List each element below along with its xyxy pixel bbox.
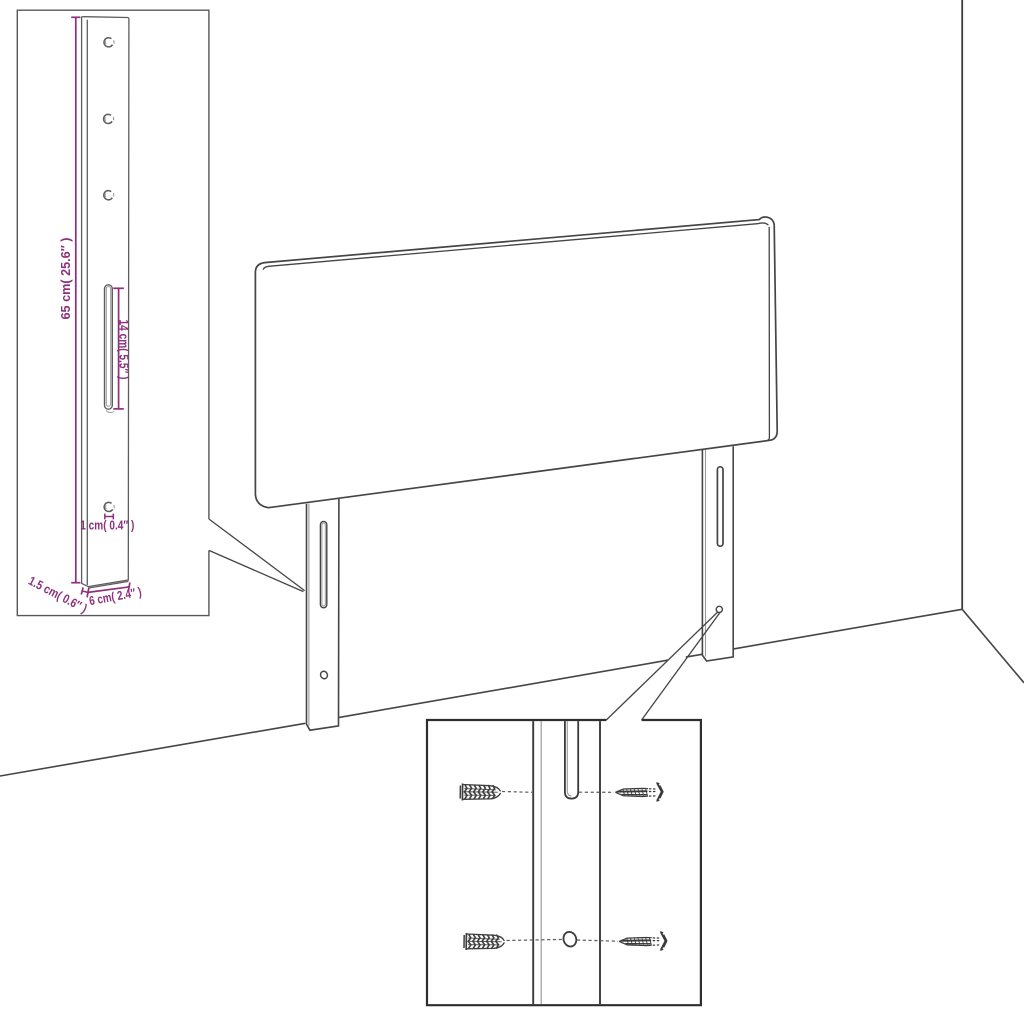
svg-text:14 cm( 5.5″ ): 14 cm( 5.5″ ) [117,320,131,380]
svg-text:65 cm( 25.6″ ): 65 cm( 25.6″ ) [59,238,73,320]
svg-text:1 cm( 0.4″ ): 1 cm( 0.4″ ) [80,519,134,533]
